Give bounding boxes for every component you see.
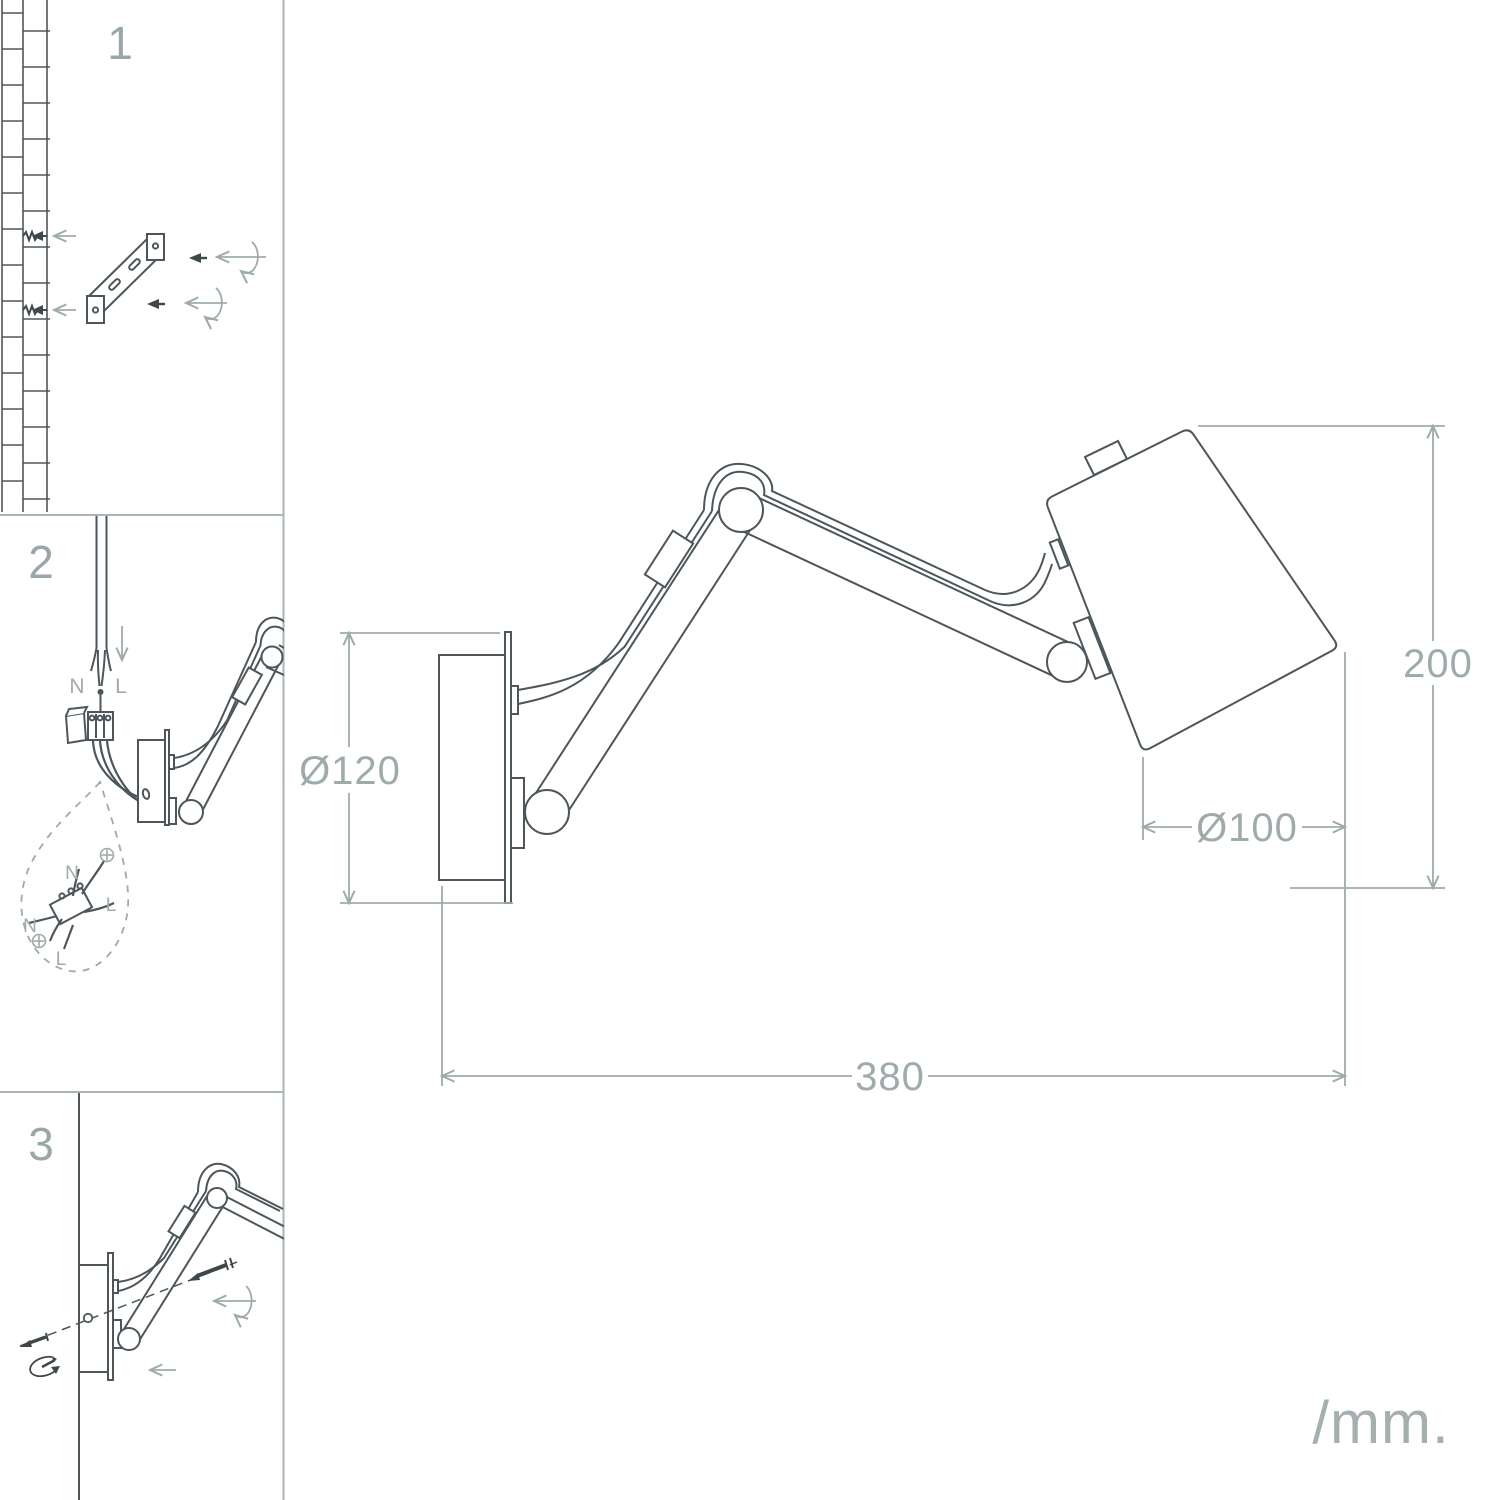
terminal-block: [88, 712, 113, 740]
screw-icon: [189, 253, 207, 263]
plate-bracket: [511, 778, 524, 848]
step3-panel: [20, 1093, 284, 1500]
main-lamp-drawing: Ø120 200 Ø100 380: [299, 426, 1473, 1099]
step1-number: 1: [107, 17, 133, 69]
swivel-ball: [179, 800, 203, 824]
plate-bracket: [169, 798, 176, 824]
earth-icon: [101, 849, 114, 862]
screw-icon: [188, 1258, 233, 1281]
bubble-neutral-top-label: N: [65, 863, 79, 884]
mains-cable: [91, 516, 111, 712]
rotate-screw-icon: [30, 1356, 60, 1376]
cable-stub: [169, 755, 174, 769]
wall-plate-assembly: [439, 632, 569, 903]
dim-width: 380: [855, 1055, 925, 1099]
dim-shade-diameter: Ø100: [1196, 806, 1298, 850]
elbow-ball: [719, 488, 763, 532]
connector-box: [66, 707, 87, 743]
wall-plate: [505, 632, 511, 903]
step2-panel: [21, 516, 288, 971]
mini-lamp-step3: [79, 1164, 284, 1380]
elbow-ball: [262, 647, 283, 668]
wall-plate: [165, 730, 169, 825]
cable-stub: [113, 1280, 118, 1293]
elbow-ball: [207, 1188, 227, 1208]
dim-plate-diameter: Ø120: [299, 749, 401, 793]
units-label: /mm.: [1312, 1389, 1449, 1456]
step1-panel: [0, 0, 266, 512]
cable-stub: [511, 686, 518, 714]
mini-lamp-step2: [138, 618, 288, 825]
wire-tip: [98, 689, 104, 695]
swivel-ball: [118, 1328, 140, 1350]
instruction-sheet: 1: [0, 0, 1500, 1500]
cable-neutral-label: N: [69, 675, 84, 698]
cable-live-label: L: [115, 675, 127, 698]
washer: [84, 1314, 92, 1322]
shade-ball: [1047, 642, 1087, 682]
lamp-cable: [518, 464, 1052, 704]
screw-icon: [147, 299, 165, 309]
wall-plate: [108, 1253, 113, 1380]
step2-number: 2: [28, 536, 54, 588]
articulated-arm: [531, 488, 1074, 820]
bubble-neutral-left-label: N: [23, 916, 37, 937]
lower-arm-edge: [531, 500, 725, 800]
dim-height: 200: [1403, 642, 1473, 686]
cable-elbow-loop: [261, 627, 287, 646]
arm-cable: [174, 642, 256, 768]
mounting-bracket: [87, 234, 164, 323]
lamp-shade: [1047, 430, 1336, 749]
step3-number: 3: [28, 1118, 54, 1170]
diagram-canvas: 1: [0, 0, 1500, 1500]
upper-arm-edge: [749, 493, 1075, 645]
brick-wall: [0, 0, 50, 512]
bubble-live-bottom-label: L: [56, 949, 67, 970]
canopy: [439, 655, 505, 880]
bubble-live-right-label: L: [106, 895, 117, 916]
swivel-ball: [525, 790, 569, 834]
canopy: [138, 740, 165, 822]
arm-sleeve: [645, 531, 693, 588]
screw-icon: [20, 1333, 48, 1347]
shade-assembly: [1047, 430, 1336, 749]
